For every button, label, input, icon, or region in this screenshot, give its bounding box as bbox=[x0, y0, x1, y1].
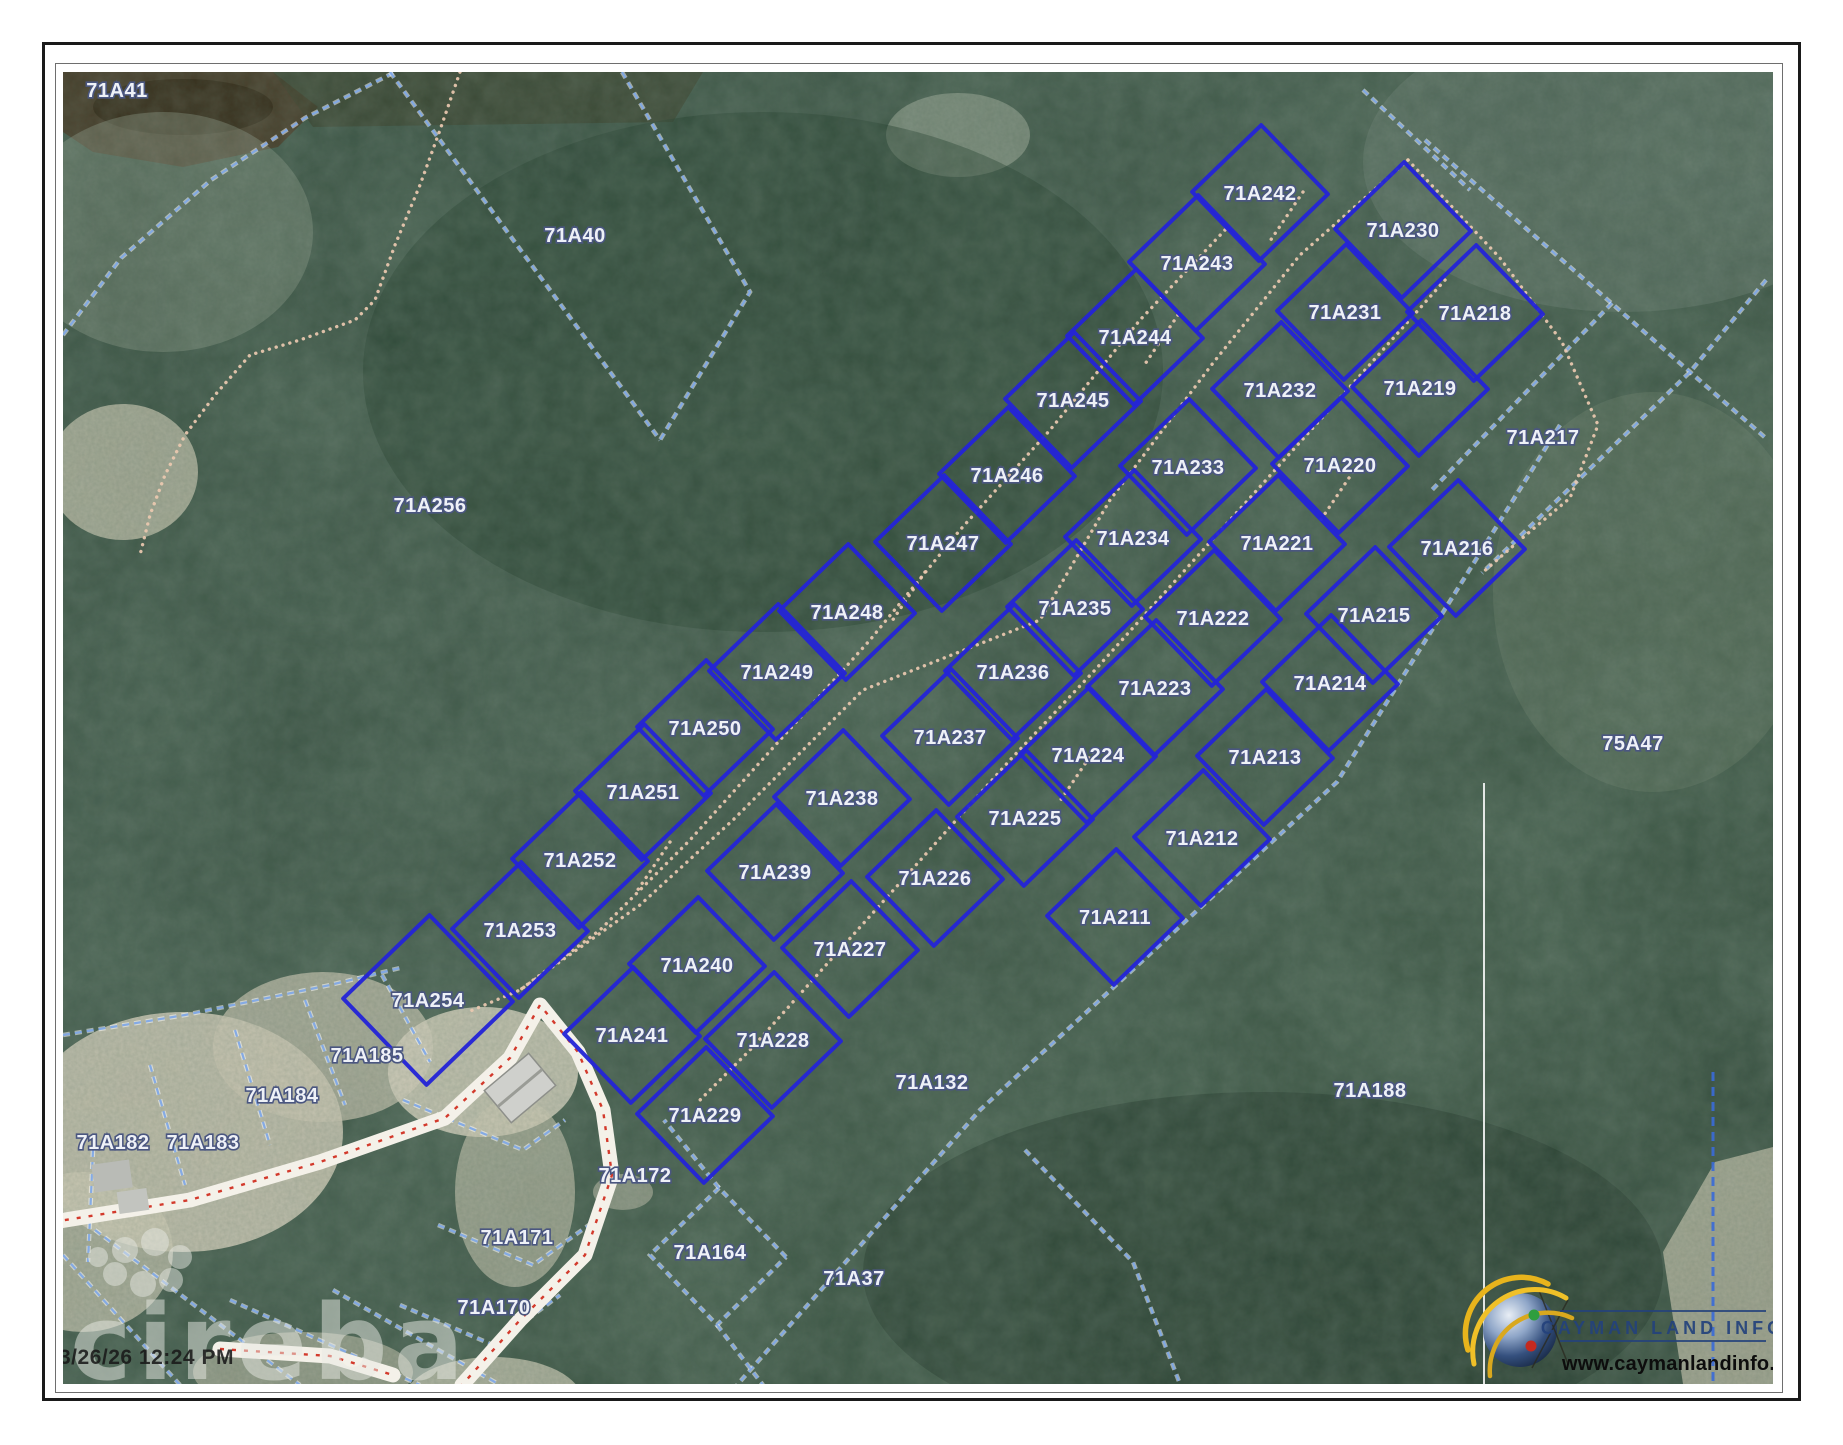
timestamp: 3/26/26 12:24 PM bbox=[63, 1346, 234, 1369]
parcel-label-71A230: 71A230 bbox=[1366, 220, 1439, 242]
parcel-label-71A213: 71A213 bbox=[1228, 747, 1301, 769]
area-label-75A47: 75A47 bbox=[1602, 733, 1663, 755]
parcel-label-71A246: 71A246 bbox=[970, 465, 1043, 487]
parcel-label-71A220: 71A220 bbox=[1303, 455, 1376, 477]
parcel-label-71A228: 71A228 bbox=[736, 1030, 809, 1052]
parcel-label-71A254: 71A254 bbox=[391, 990, 464, 1012]
parcel-label-71A252: 71A252 bbox=[543, 850, 616, 872]
parcel-label-71A226: 71A226 bbox=[898, 868, 971, 890]
area-label-71A37: 71A37 bbox=[823, 1268, 884, 1290]
parcel-label-71A219: 71A219 bbox=[1383, 378, 1456, 400]
area-label-71A256: 71A256 bbox=[393, 495, 466, 517]
parcel-label-71A215: 71A215 bbox=[1337, 605, 1410, 627]
parcel-label-71A241: 71A241 bbox=[595, 1025, 668, 1047]
parcel-label-71A242: 71A242 bbox=[1223, 183, 1296, 205]
area-label-71A132: 71A132 bbox=[895, 1072, 968, 1094]
parcel-label-71A243: 71A243 bbox=[1160, 253, 1233, 275]
parcel-label-71A227: 71A227 bbox=[813, 939, 886, 961]
parcel-label-71A231: 71A231 bbox=[1308, 302, 1381, 324]
parcel-label-71A250: 71A250 bbox=[668, 718, 741, 740]
parcel-label-71A247: 71A247 bbox=[906, 533, 979, 555]
area-label-71A172: 71A172 bbox=[598, 1165, 671, 1187]
parcel-label-71A212: 71A212 bbox=[1165, 828, 1238, 850]
map-export-page: 71A24271A24371A24471A24571A24671A24771A2… bbox=[0, 0, 1843, 1445]
area-label-71A40: 71A40 bbox=[544, 225, 605, 247]
parcel-label-71A235: 71A235 bbox=[1038, 598, 1111, 620]
parcel-label-71A216: 71A216 bbox=[1420, 538, 1493, 560]
parcel-label-71A240: 71A240 bbox=[660, 955, 733, 977]
parcel-label-71A239: 71A239 bbox=[738, 862, 811, 884]
area-label-71A182: 71A182 bbox=[76, 1132, 149, 1154]
green-dot bbox=[1529, 1310, 1540, 1321]
parcel-label-71A211: 71A211 bbox=[1079, 907, 1151, 929]
parcel-label-71A244: 71A244 bbox=[1098, 327, 1171, 349]
parcel-label-71A248: 71A248 bbox=[810, 602, 883, 624]
parcel-label-71A223: 71A223 bbox=[1118, 678, 1191, 700]
parcel-label-71A251: 71A251 bbox=[606, 782, 679, 804]
area-label-71A184: 71A184 bbox=[245, 1085, 318, 1107]
area-label-71A183: 71A183 bbox=[166, 1132, 239, 1154]
parcel-label-71A238: 71A238 bbox=[805, 788, 878, 810]
parcel-label-71A234: 71A234 bbox=[1096, 528, 1169, 550]
parcel-label-71A253: 71A253 bbox=[483, 920, 556, 942]
area-label-71A188: 71A188 bbox=[1333, 1080, 1406, 1102]
parcel-label-71A218: 71A218 bbox=[1438, 303, 1511, 325]
parcel-label-71A229: 71A229 bbox=[668, 1105, 741, 1127]
parcel-label-71A237: 71A237 bbox=[913, 727, 986, 749]
parcel-label-71A225: 71A225 bbox=[988, 808, 1061, 830]
parcel-label-71A236: 71A236 bbox=[976, 662, 1049, 684]
area-label-71A217: 71A217 bbox=[1506, 427, 1579, 449]
parcel-label-71A224: 71A224 bbox=[1051, 745, 1124, 767]
map-viewport: 71A24271A24371A24471A24571A24671A24771A2… bbox=[63, 72, 1773, 1384]
parcel-label-71A214: 71A214 bbox=[1293, 673, 1366, 695]
area-label-71A164: 71A164 bbox=[673, 1242, 746, 1264]
parcel-label-71A245: 71A245 bbox=[1036, 390, 1109, 412]
parcel-label-71A221: 71A221 bbox=[1240, 533, 1313, 555]
parcel-label-71A249: 71A249 bbox=[740, 662, 813, 684]
red-dot bbox=[1526, 1341, 1537, 1352]
parcel-label-71A232: 71A232 bbox=[1243, 380, 1316, 402]
logo-url: www.caymanlandinfo.ky bbox=[1561, 1353, 1773, 1375]
logo-title: CAYMAN LAND INFO bbox=[1541, 1318, 1773, 1338]
area-label-71A185: 71A185 bbox=[330, 1045, 403, 1067]
parcel-label-71A233: 71A233 bbox=[1151, 457, 1224, 479]
parcel-label-71A222: 71A222 bbox=[1176, 608, 1249, 630]
map-image: 71A24271A24371A24471A24571A24671A24771A2… bbox=[63, 72, 1773, 1384]
area-label-71A41: 71A41 bbox=[86, 80, 147, 102]
area-label-71A171: 71A171 bbox=[480, 1227, 553, 1249]
